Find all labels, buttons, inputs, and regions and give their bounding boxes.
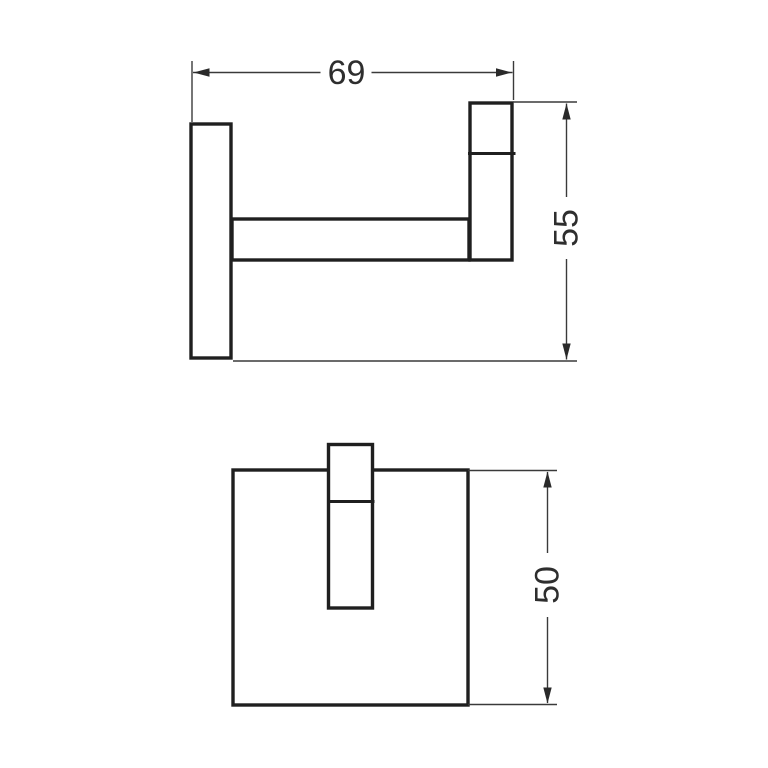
technical-drawing-canvas: 69 55 [0,0,768,768]
dim-55-label: 55 [548,209,586,247]
arrow-down-icon [562,344,570,360]
side-view: 69 55 [191,54,586,361]
dim-69-label: 69 [328,54,366,92]
arrow-left-icon [194,68,210,76]
side-view-hook-arm [232,219,469,260]
dim-50-label: 50 [529,566,567,604]
front-view-hook [329,445,373,609]
side-view-hook-tip [470,103,512,260]
dimension-width-69: 69 [192,54,514,122]
drawing-page: 69 55 [0,0,768,768]
front-view: 50 [233,445,567,706]
dimension-height-50: 50 [468,471,567,705]
arrow-up-icon [562,104,570,120]
side-view-wall-plate [191,124,231,358]
arrow-down-icon [543,688,551,704]
arrow-right-icon [496,68,512,76]
arrow-up-icon [543,472,551,488]
